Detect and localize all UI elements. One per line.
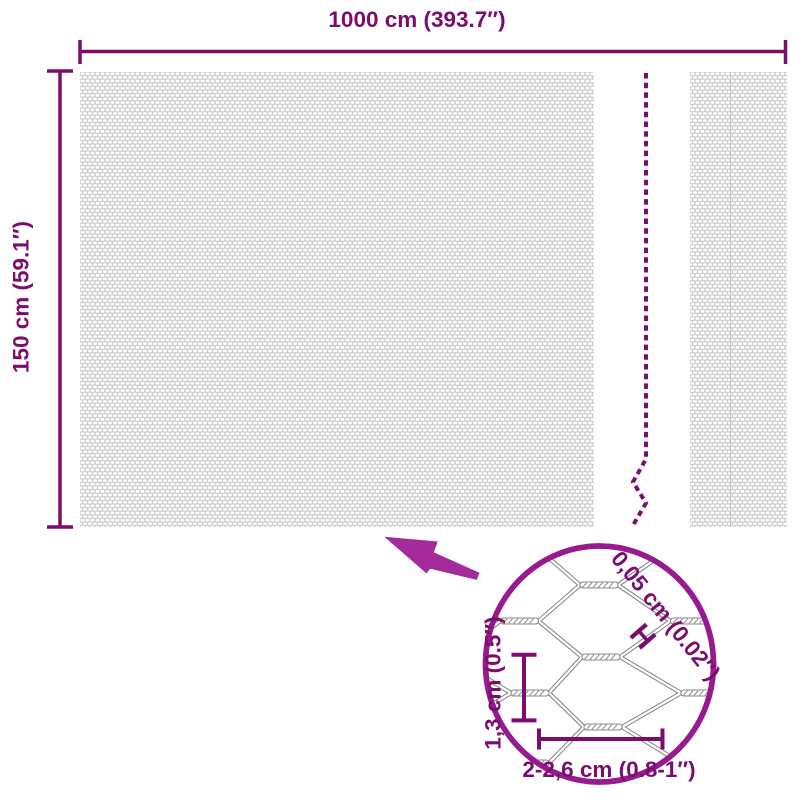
svg-text:1000 cm (393.7″): 1000 cm (393.7″) xyxy=(328,7,505,32)
svg-text:1,3 cm (0.5″): 1,3 cm (0.5″) xyxy=(481,616,506,749)
svg-text:2-2,6 cm (0.8-1″): 2-2,6 cm (0.8-1″) xyxy=(522,757,695,782)
svg-text:150 cm (59.1″): 150 cm (59.1″) xyxy=(9,221,34,373)
